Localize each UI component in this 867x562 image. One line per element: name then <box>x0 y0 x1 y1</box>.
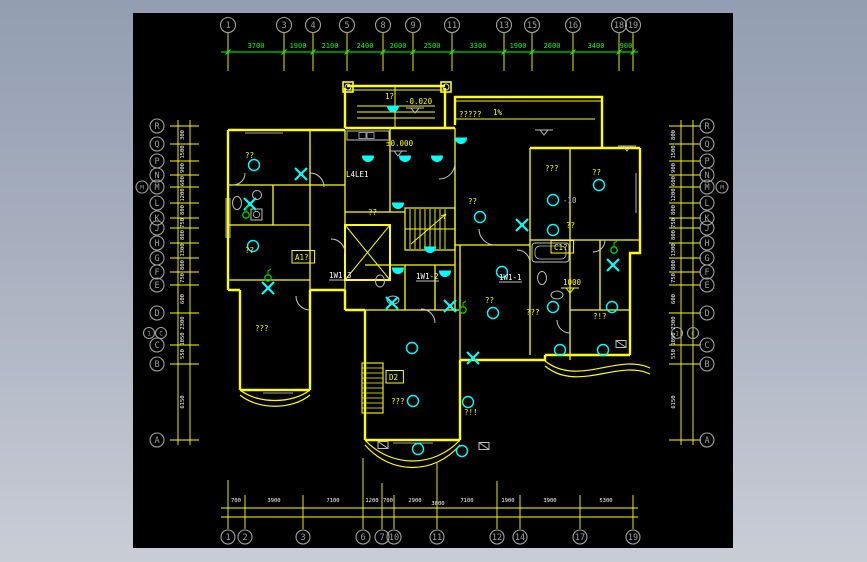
grid-axis-bubble-bottom-label: 2 <box>242 533 247 543</box>
plan-text-label[interactable]: L4LE1 <box>346 170 369 179</box>
dimension-label[interactable]: 1500 <box>671 145 677 158</box>
grid-axis-bubble-right-label: R <box>704 122 710 132</box>
dimension-label[interactable]: 600 <box>180 176 186 186</box>
grid-axis-bubble-bottom-label: 14 <box>515 533 525 543</box>
level-mark-icon[interactable] <box>535 130 553 135</box>
grid-axis-bubble-left-label: P <box>154 157 159 167</box>
plan-text-label[interactable]: ?? <box>468 197 477 206</box>
grid-axis-bubble-top-label: 13 <box>499 21 509 31</box>
dimension-label[interactable]: 1200 <box>671 188 677 201</box>
ceiling-lamp-icon[interactable] <box>548 302 559 313</box>
grid-axis-bubble-right-label: E <box>704 281 709 291</box>
dimension-label[interactable]: 2500 <box>424 42 441 50</box>
exhaust-fan-icon[interactable] <box>262 282 274 294</box>
plan-text-label[interactable]: ?? <box>592 168 601 177</box>
dimension-label[interactable]: 5300 <box>599 498 612 504</box>
dimension-label[interactable]: 1300 <box>671 243 677 256</box>
grid-axis-bubble-right-label: H <box>704 239 709 249</box>
grid-axis-bubble-right-label: G <box>704 254 709 264</box>
plan-text-label[interactable]: D2 <box>389 373 398 382</box>
dimension-label[interactable]: 7100 <box>326 498 339 504</box>
dimension-label[interactable]: 1050 <box>180 332 186 345</box>
plan-text-label[interactable]: -10 <box>563 196 577 205</box>
speaker-box-icon[interactable] <box>378 442 388 449</box>
grid-axis-bubble-bottom-label: 11 <box>432 533 442 543</box>
ceiling-lamp-icon[interactable] <box>548 225 559 236</box>
plan-text-label[interactable]: A1? <box>295 253 309 262</box>
grid-axis-bubble-right-label: B <box>704 360 709 370</box>
grid-axis-bubble-top-label: 5 <box>344 21 349 31</box>
dimension-label[interactable]: 1900 <box>510 42 527 50</box>
plan-text-label[interactable]: 1% <box>493 108 503 117</box>
grid-axis-bubble-top-label: 4 <box>310 21 315 31</box>
grid-axis-bubble-top-label: 1 <box>225 21 230 31</box>
ceiling-lamp-icon[interactable] <box>457 446 468 457</box>
plan-text-label[interactable]: 1? <box>385 92 394 101</box>
dimension-label[interactable]: 600 <box>671 294 677 304</box>
exhaust-fan-icon[interactable] <box>295 168 307 180</box>
grid-axis-bubble-bottom-label: 7 <box>379 533 384 543</box>
level-mark-icon[interactable] <box>389 151 407 156</box>
dimension-label[interactable]: 2300 <box>671 316 677 329</box>
plan-text-label[interactable]: ?!! <box>464 408 478 417</box>
grid-axis-bubble-bottom-label: 10 <box>389 533 399 543</box>
dimension-label[interactable]: 2400 <box>357 42 374 50</box>
dimension-label[interactable]: 800 <box>671 230 677 240</box>
dimension-label[interactable]: 1300 <box>180 243 186 256</box>
grid-axis-bubble-right-label: C <box>691 330 695 337</box>
plan-text-label[interactable]: ?? <box>245 246 254 255</box>
plan-text-label[interactable]: ?!? <box>593 312 607 321</box>
grid-axis-bubble-bottom-label: 12 <box>492 533 502 543</box>
grid-axis-bubble-right-label: F <box>704 268 709 278</box>
dimension-label[interactable]: 1200 <box>180 188 186 201</box>
dimension-label[interactable]: 800 <box>180 260 186 270</box>
grid-axis-bubble-left-label: C <box>154 341 159 351</box>
grid-axis-bubble-right-label: D <box>704 309 709 319</box>
dimension-label[interactable]: 3400 <box>588 42 605 50</box>
dimension-label[interactable]: 800 <box>180 230 186 240</box>
floor-plan-svg[interactable]: 1345891113151618193700190021002400200025… <box>133 13 733 548</box>
grid-axis-bubble-left-label: E <box>154 281 159 291</box>
ceiling-lamp-icon[interactable] <box>408 396 419 407</box>
grid-axis-bubble-right-label: A <box>704 436 709 446</box>
dimension-label[interactable]: 800 <box>180 205 186 215</box>
exhaust-fan-icon[interactable] <box>467 352 479 364</box>
dimension-label[interactable]: 1200 <box>365 498 378 504</box>
grid-axis-bubble-top-label: 19 <box>628 21 638 31</box>
plan-text-label[interactable]: ??? <box>255 324 269 333</box>
exhaust-fan-icon[interactable] <box>607 259 619 271</box>
grid-axis-bubble-right-label: C <box>704 341 709 351</box>
dimension-label[interactable]: 2100 <box>322 42 339 50</box>
dimension-label[interactable]: 750 <box>180 218 186 228</box>
plan-text-label[interactable]: 1W1-3 <box>329 271 352 280</box>
ceiling-lamp-icon[interactable] <box>607 302 618 313</box>
dimension-label[interactable]: 1900 <box>290 42 307 50</box>
grid-axis-bubble-left-label: A <box>154 436 159 446</box>
ceiling-lamp-icon[interactable] <box>413 444 424 455</box>
grid-axis-bubble-left-label: H <box>154 239 159 249</box>
plan-text-label[interactable]: C1? <box>554 243 568 252</box>
grid-axis-bubble-bottom-label: 6 <box>360 533 365 543</box>
dimension-label[interactable]: 2000 <box>390 42 407 50</box>
plan-text-label[interactable]: ?? <box>245 151 254 160</box>
dimension-label[interactable]: 750 <box>671 273 677 283</box>
ceiling-lamp-icon[interactable] <box>548 195 559 206</box>
wall-lamp-icon[interactable] <box>387 106 399 112</box>
plan-text-label[interactable]: ????? <box>459 110 482 119</box>
dimension-label[interactable]: 900 <box>180 163 186 173</box>
grid-axis-bubble-top-label: 11 <box>447 21 457 31</box>
ceiling-lamp-icon[interactable] <box>488 308 499 319</box>
cad-viewer-background: 1345891113151618193700190021002400200025… <box>0 0 867 562</box>
grid-axis-bubble-left-label: M <box>154 183 159 193</box>
grid-axis-bubble-top-label: 9 <box>410 21 415 31</box>
dimension-label[interactable]: 700 <box>231 498 241 504</box>
grid-axis-bubble-left-label: C <box>159 330 163 337</box>
grid-axis-bubble-left-label: B <box>154 360 159 370</box>
grid-axis-bubble-top-label: 16 <box>568 21 578 31</box>
exhaust-fan-icon[interactable] <box>516 219 528 231</box>
dimension-label[interactable]: 1500 <box>180 145 186 158</box>
ceiling-lamp-icon[interactable] <box>594 180 605 191</box>
dimension-label[interactable]: 2900 <box>408 498 421 504</box>
dimension-label[interactable]: 600 <box>180 294 186 304</box>
wall-lamp-icon[interactable] <box>431 156 443 162</box>
wall-lamp-icon[interactable] <box>392 203 404 209</box>
grid-axis-bubble-top-label: 18 <box>614 21 624 31</box>
dimension-label[interactable]: 1050 <box>671 332 677 345</box>
grid-axis-bubble-bottom-label: 17 <box>575 533 585 543</box>
dimension-label[interactable]: 7100 <box>460 498 473 504</box>
grid-axis-bubble-bottom-label: 3 <box>300 533 305 543</box>
grid-axis-bubble-left-label: R <box>154 122 160 132</box>
grid-axis-bubble-left-label: 1 <box>147 330 151 337</box>
grid-axis-bubble-right-label: J <box>704 224 709 234</box>
grid-axis-bubble-left-label: D <box>154 309 159 319</box>
dimension-label[interactable]: 3900 <box>543 498 556 504</box>
plan-text-label[interactable]: ??? <box>391 397 405 406</box>
dimension-label[interactable]: 6150 <box>671 395 677 408</box>
dimension-label[interactable]: 6150 <box>180 395 186 408</box>
dimension-label[interactable]: 3000 <box>431 501 444 507</box>
grid-axis-bubble-right-label: Q <box>704 140 709 150</box>
grid-axis-bubble-right-label: M <box>720 184 724 191</box>
dimension-label[interactable]: 550 <box>180 349 186 359</box>
switch-icon[interactable] <box>243 206 249 218</box>
wall-lamp-icon[interactable] <box>455 138 467 144</box>
grid-axis-bubble-right-label: P <box>704 157 709 167</box>
dimension-label[interactable]: 3700 <box>248 42 265 50</box>
wall-lamp-icon[interactable] <box>439 271 451 277</box>
grid-axis-bubble-top-label: 3 <box>281 21 286 31</box>
dimension-label[interactable]: 300 <box>180 130 186 140</box>
dimension-label[interactable]: 3300 <box>470 42 487 50</box>
grid-axis-bubble-right-label: K <box>704 214 710 224</box>
plan-text-label[interactable]: 1000 <box>563 278 582 287</box>
switch-icon[interactable] <box>611 241 617 253</box>
dimension-label[interactable]: 700 <box>383 498 393 504</box>
wall-lamp-icon[interactable] <box>424 247 436 253</box>
grid-axis-bubble-left-label: K <box>154 214 160 224</box>
plan-text-label[interactable]: ??? <box>526 308 540 317</box>
grid-axis-bubble-left-label: Q <box>154 140 159 150</box>
grid-axis-bubble-bottom-label: 1 <box>225 533 230 543</box>
grid-axis-bubble-left-label: G <box>154 254 159 264</box>
plan-text-label[interactable]: 1W1-2 <box>416 272 439 281</box>
plan-text-label[interactable]: ?? <box>368 208 377 217</box>
drawing-canvas[interactable]: 1345891113151618193700190021002400200025… <box>133 13 733 548</box>
grid-axis-bubble-left-label: F <box>154 268 159 278</box>
dimension-label[interactable]: 750 <box>180 273 186 283</box>
ceiling-lamp-icon[interactable] <box>463 397 474 408</box>
wall-lamp-icon[interactable] <box>399 156 411 162</box>
dimension-label[interactable]: 900 <box>620 42 633 50</box>
wall-lamp-icon[interactable] <box>392 268 404 274</box>
grid-axis-bubble-left-label: L <box>154 199 159 209</box>
dimension-label[interactable]: 750 <box>671 218 677 228</box>
dimension-label[interactable]: 2300 <box>180 316 186 329</box>
dimension-label[interactable]: 800 <box>671 205 677 215</box>
dimension-label[interactable]: 800 <box>671 130 677 140</box>
plan-text-label[interactable]: 1W1-1 <box>499 273 522 282</box>
speaker-box-icon[interactable] <box>616 341 626 348</box>
plan-text-label[interactable]: ?? <box>566 221 575 230</box>
dimension-label[interactable]: 900 <box>671 163 677 173</box>
ceiling-lamp-icon[interactable] <box>475 212 486 223</box>
dimension-label[interactable]: 1900 <box>501 498 514 504</box>
plan-text-label[interactable]: ?? <box>485 296 494 305</box>
dimension-label[interactable]: 600 <box>671 176 677 186</box>
grid-axis-bubble-bottom-label: 19 <box>628 533 638 543</box>
dimension-label[interactable]: 2600 <box>544 42 561 50</box>
dimension-label[interactable]: 800 <box>671 260 677 270</box>
plan-text-label[interactable]: -0.020 <box>405 97 433 106</box>
grid-axis-bubble-top-label: 15 <box>527 21 537 31</box>
wall-lamp-icon[interactable] <box>362 156 374 162</box>
dimension-label[interactable]: 550 <box>671 349 677 359</box>
plan-text-label[interactable]: ??? <box>545 164 559 173</box>
switch-icon[interactable] <box>460 301 466 313</box>
plan-text-label[interactable]: ±0.000 <box>386 139 414 148</box>
ceiling-lamp-icon[interactable] <box>407 343 418 354</box>
speaker-box-icon[interactable] <box>479 443 489 450</box>
grid-axis-bubble-right-label: M <box>704 183 709 193</box>
grid-axis-bubble-top-label: 8 <box>380 21 385 31</box>
ceiling-lamp-icon[interactable] <box>249 160 260 171</box>
grid-axis-bubble-right-label: L <box>704 199 709 209</box>
grid-axis-bubble-left-label: J <box>154 224 159 234</box>
dimension-label[interactable]: 3900 <box>267 498 280 504</box>
grid-axis-bubble-left-label: M <box>140 184 144 191</box>
